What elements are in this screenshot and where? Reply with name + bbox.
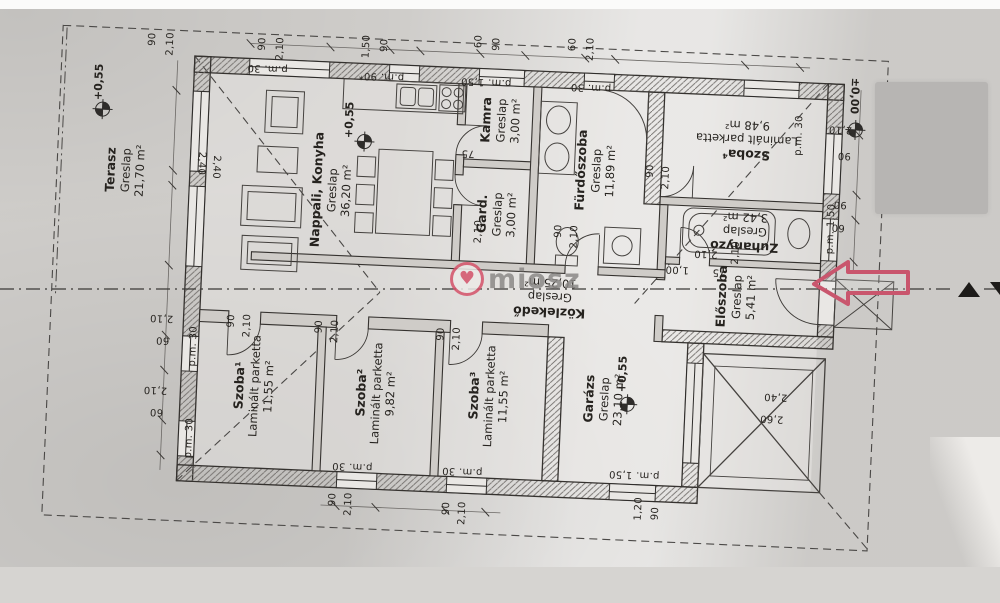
dim-label: 60 — [150, 406, 164, 418]
room-label-szoba1: Szoba¹ Laminált parketta 11,55 m² — [229, 334, 278, 438]
window-room4-right — [824, 134, 843, 195]
room-label-zuhanyzo: Zuhanyzó Greslap 3,42 m² — [710, 209, 780, 256]
dim-label: 2,40 — [210, 155, 222, 179]
window-garage-bottom — [609, 484, 656, 502]
floorplan-scan: Terasz Greslap 21,70 m² Nappali, Konyha … — [0, 0, 1000, 567]
window-room3-bottom — [446, 476, 487, 494]
plan-drawing: Terasz Greslap 21,70 m² Nappali, Konyha … — [0, 0, 1000, 603]
dim-label: 2,10 — [329, 320, 341, 344]
dim-label: 2,10 — [456, 501, 468, 525]
dim-label: 60 — [473, 35, 485, 49]
dim-label: 2,10 — [143, 384, 167, 396]
redaction-box — [875, 82, 988, 214]
scanner-edge-strip — [0, 0, 1000, 9]
dim-label: 2,10 — [274, 37, 286, 61]
parapet-label: p.m. 90* — [358, 70, 404, 83]
parapet-label: p.m. 30 — [571, 81, 612, 94]
room-label-nappali-konyha: Nappali, Konyha Greslap 36,20 m² — [307, 132, 356, 249]
room-label-kamra: Kamra Greslap 3,00 m² — [477, 97, 523, 145]
parapet-label: p.m. 30 — [332, 460, 373, 473]
room-label-furdoszoba: Fürdőszoba Greslap 11,89 m² — [571, 129, 619, 212]
watermark: ♥ miosz — [450, 262, 581, 296]
window-room2-bottom — [336, 472, 377, 490]
dim-label: 2,10 — [660, 166, 672, 190]
room-label-szoba2: Szoba² Laminált parketta 9,82 m² — [351, 341, 400, 445]
paper-edge — [930, 437, 1000, 567]
dim-label: 90 — [147, 32, 159, 46]
elevation-label-garazs: +0,55 — [615, 356, 630, 393]
dim-label: 2,60 — [760, 413, 784, 425]
dim-label: 2,10 — [568, 225, 580, 249]
dim-label: 90 — [314, 320, 326, 334]
dim-label: 90 — [837, 150, 851, 162]
dim-label: 60 — [567, 38, 579, 52]
parapet-label: p.m. 30 — [793, 115, 806, 156]
terrace-door-2 — [186, 186, 205, 267]
dim-label: 90 — [650, 507, 662, 521]
dim-label: 1,20 — [633, 497, 645, 521]
elevation-marker-terrace — [92, 99, 113, 120]
entrance-door-opening — [818, 281, 836, 326]
dim-label: 2,40 — [195, 152, 207, 176]
dim-label: 2,10 — [451, 327, 463, 351]
dim-label: 75 — [712, 266, 726, 278]
dim-label: 1,00 — [665, 263, 689, 275]
dim-label: 2,10 — [473, 220, 485, 244]
dim-label: 90 — [226, 314, 238, 328]
room-label-szoba3: Szoba³ Laminált parketta 11,55 m² — [464, 344, 513, 448]
dim-label: 60 — [156, 334, 170, 346]
dim-label: 90 — [491, 37, 503, 51]
dim-label: 90 — [435, 327, 447, 341]
room-label-szoba4: Szoba⁴ Laminált parketta 9,48 m² — [695, 116, 799, 165]
parapet-label: p.m. 30 — [247, 62, 288, 75]
entry-steps — [834, 279, 894, 329]
dim-label: 75 — [461, 147, 475, 159]
dim-label: 2,10 — [828, 123, 852, 135]
parapet-label: p.m. 1,50 — [461, 75, 512, 88]
parapet-label: p.m. 30 — [187, 326, 200, 367]
elevation-label-nappali: +0,55 — [342, 101, 357, 138]
dim-label: 2,10 — [343, 492, 355, 516]
dim-label: 2,10 — [585, 37, 597, 61]
elevation-label-entry: ±0,00 — [848, 77, 863, 114]
parapet-label: p.m. 30 — [183, 418, 196, 459]
elevation-label-terasz: +0,55 — [91, 63, 106, 100]
room-label-terasz: Terasz Greslap 21,70 m² — [102, 143, 149, 197]
dim-label: 90 — [441, 502, 453, 516]
dim-label: 90 — [645, 164, 657, 178]
dim-label: 1,50 — [361, 35, 373, 59]
dim-label: 90 — [379, 38, 391, 52]
parapet-label: p.m. 30 — [442, 465, 483, 478]
dim-label: 90 — [327, 493, 339, 507]
dim-label: 2,10 — [730, 241, 742, 265]
dim-label: 2,40 — [764, 391, 788, 403]
watermark-text: miosz — [488, 264, 581, 295]
dim-label: 2,10 — [164, 32, 176, 56]
parapet-label: p.m. 1,50 — [609, 468, 660, 481]
parapet-label: p.m. 1,50 — [824, 203, 837, 254]
dim-label: 2,10 — [241, 314, 253, 338]
heart-logo-icon: ♥ — [450, 262, 484, 296]
dim-label: 90 — [257, 37, 269, 51]
dim-label: 2,10 — [694, 248, 718, 260]
window-room4-top — [744, 80, 800, 98]
dim-label: 2,10 — [150, 312, 174, 324]
dim-label: 90 — [553, 224, 565, 238]
